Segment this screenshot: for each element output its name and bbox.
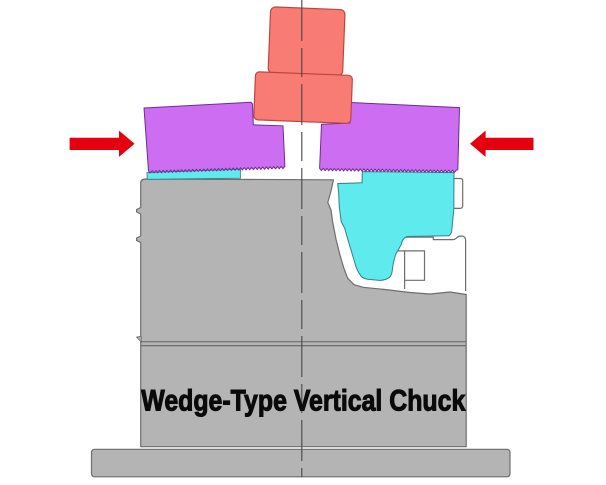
svg-text:Wedge-Type Vertical Chuck: Wedge-Type Vertical Chuck — [141, 384, 465, 417]
